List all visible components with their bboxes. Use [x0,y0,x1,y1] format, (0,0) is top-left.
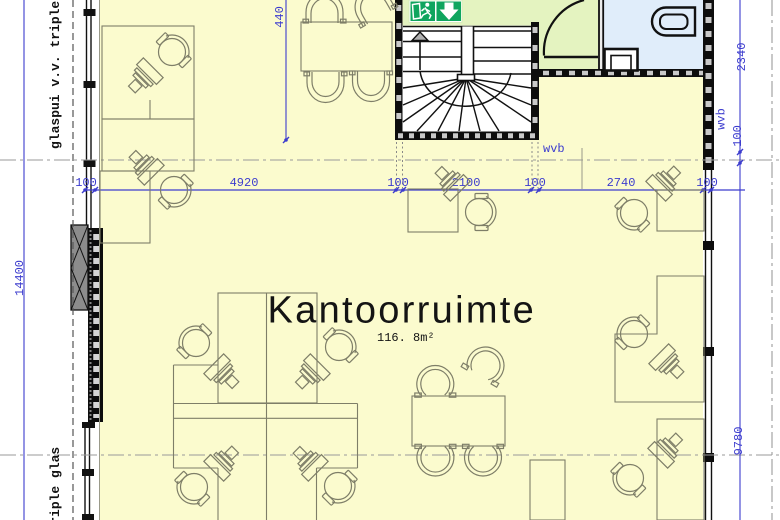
svg-text:100: 100 [387,176,409,190]
svg-text:4920: 4920 [230,176,259,190]
svg-text:9780: 9780 [732,427,746,456]
svg-text:Kantoorruimte: Kantoorruimte [268,290,537,332]
svg-text:2340: 2340 [735,43,749,72]
svg-text:wvb: wvb [543,142,565,156]
svg-text:2740: 2740 [607,176,636,190]
svg-text:116. 8m²: 116. 8m² [377,331,435,345]
svg-text:14400: 14400 [13,260,27,296]
svg-text:440: 440 [273,6,287,28]
svg-text:wvb: wvb [715,108,729,130]
svg-text:100: 100 [731,125,745,147]
svg-text:100: 100 [696,176,718,190]
svg-text:100: 100 [524,176,546,190]
svg-text:100: 100 [75,176,97,190]
svg-text:glaspui v.v. triple glas: glaspui v.v. triple glas [48,447,63,520]
svg-text:glaspui v.v. triple glas: glaspui v.v. triple glas [48,0,63,149]
